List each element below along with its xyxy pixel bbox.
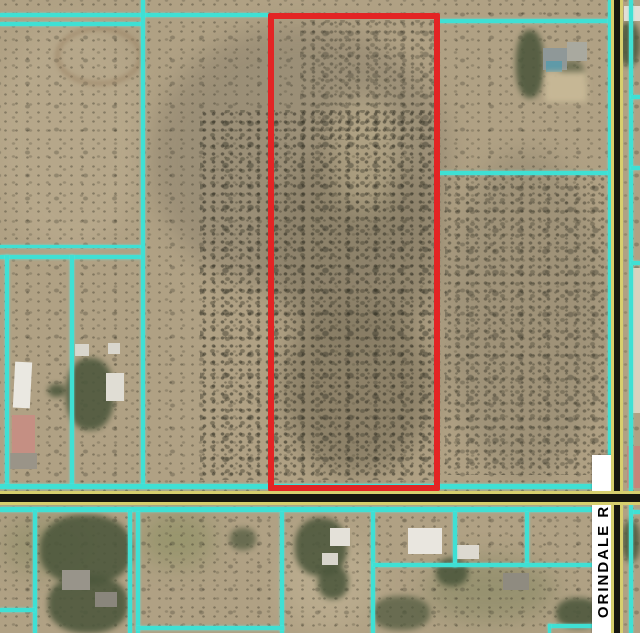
building xyxy=(408,528,442,554)
building xyxy=(322,553,338,565)
parcel-boundary-line xyxy=(33,510,37,633)
building xyxy=(503,573,529,590)
road-stripe xyxy=(620,0,623,633)
building xyxy=(12,415,35,453)
building xyxy=(75,344,89,356)
parcel-boundary-line xyxy=(631,95,640,99)
parcel-boundary-line xyxy=(632,510,640,514)
building xyxy=(330,528,350,546)
parcel-boundary-line xyxy=(453,512,457,567)
building xyxy=(545,72,587,102)
parcel-boundary-line xyxy=(631,261,640,265)
parcel-boundary-line xyxy=(0,22,143,26)
parcel-boundary-line xyxy=(128,510,132,633)
parcel-boundary-line xyxy=(0,608,35,612)
aerial-map[interactable]: ORINDALE RD xyxy=(0,0,640,633)
parcel-boundary-line xyxy=(0,13,270,17)
parcel-boundary-line xyxy=(136,512,140,633)
building xyxy=(10,453,37,469)
tree-canopy xyxy=(516,30,544,98)
parcel-boundary-line xyxy=(70,255,74,487)
building xyxy=(632,268,640,413)
tree-canopy xyxy=(372,596,430,630)
parcel-boundary-line xyxy=(373,563,594,567)
terrain-texture xyxy=(445,175,605,475)
parcel-boundary-line xyxy=(548,624,598,628)
building xyxy=(13,362,32,409)
building xyxy=(108,343,120,354)
building xyxy=(567,42,587,61)
terrain-ring-feature xyxy=(55,26,143,86)
building xyxy=(106,373,124,401)
parcel-boundary-line xyxy=(280,512,284,633)
tree-canopy xyxy=(230,528,256,550)
parcel-boundary-line xyxy=(0,507,610,512)
parcel-boundary-line xyxy=(437,19,610,23)
parcel-boundary-line xyxy=(136,626,284,630)
parcel-boundary-line xyxy=(371,512,375,633)
parcel-boundary-line xyxy=(5,255,9,487)
tree-canopy xyxy=(318,565,348,599)
road-label-text: ORINDALE RD xyxy=(595,492,612,618)
road-stripe xyxy=(0,502,640,505)
building xyxy=(455,545,479,559)
building xyxy=(95,592,117,607)
parcel-boundary-line xyxy=(437,171,610,175)
highlighted-parcel-outline[interactable] xyxy=(268,13,440,491)
parcel-boundary-line xyxy=(525,512,529,567)
parcel-boundary-line xyxy=(631,166,640,170)
parcel-boundary-line xyxy=(141,0,145,488)
building xyxy=(546,61,562,72)
parcel-boundary-line xyxy=(548,624,551,633)
parcel-boundary-line xyxy=(0,245,141,248)
building xyxy=(62,570,90,590)
road-surface xyxy=(0,494,640,502)
tree-canopy xyxy=(48,384,66,397)
